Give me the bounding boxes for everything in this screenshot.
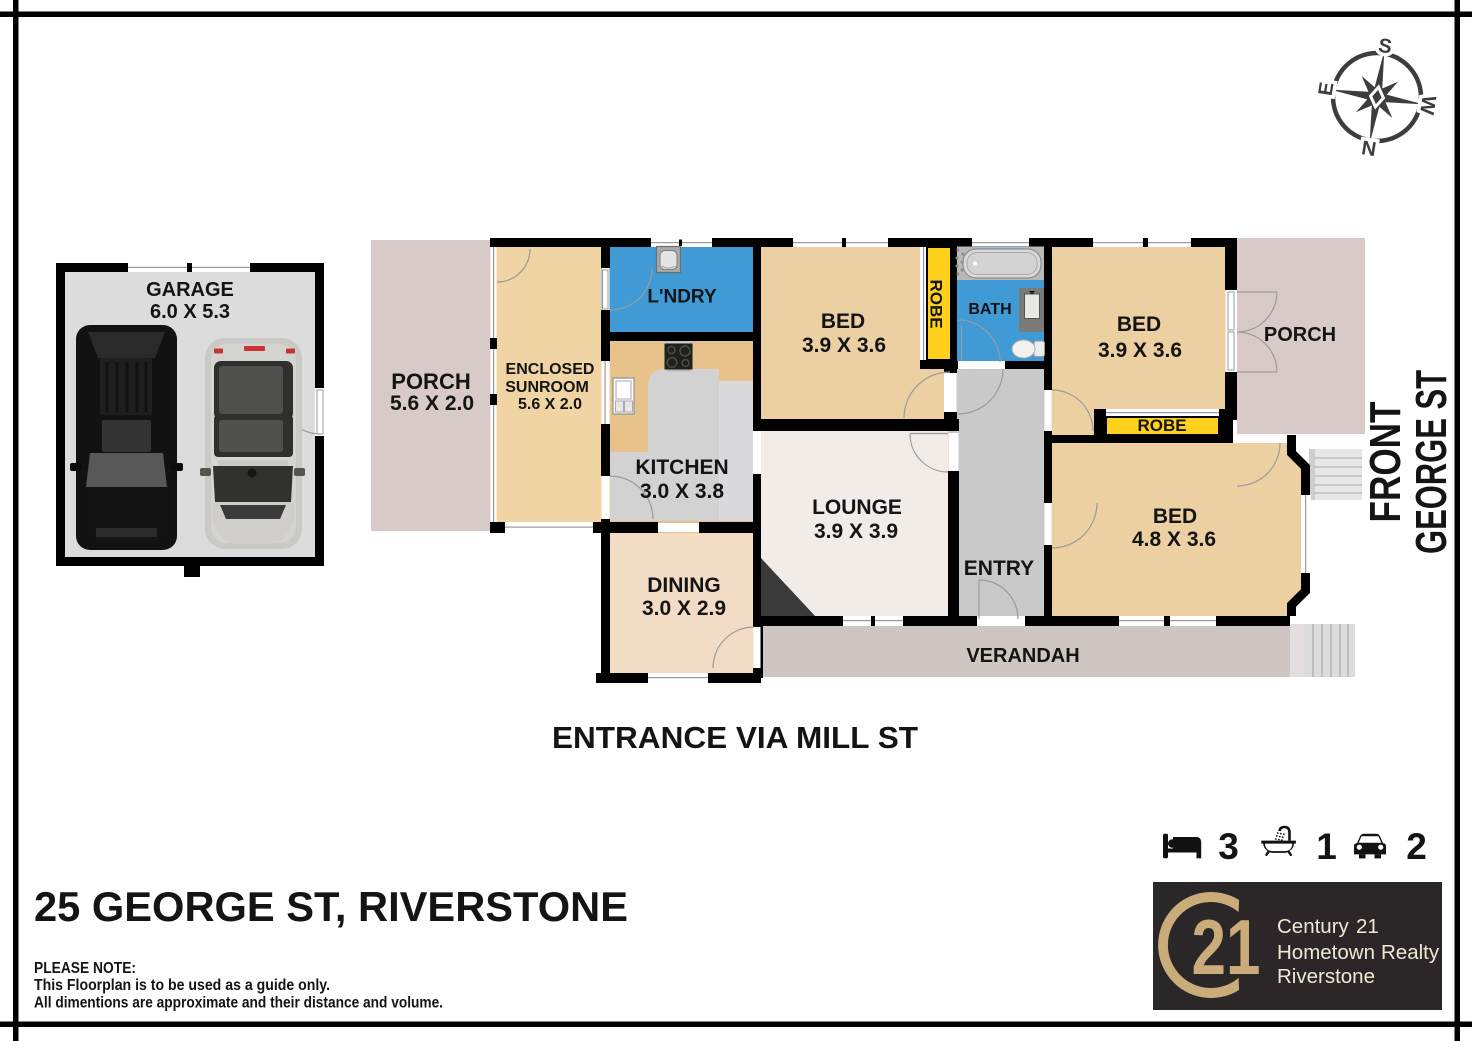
svg-text:LOUNGE: LOUNGE: [812, 496, 902, 519]
svg-text:ENTRANCE VIA MILL ST: ENTRANCE VIA MILL ST: [552, 720, 918, 755]
svg-text:KITCHEN: KITCHEN: [635, 456, 728, 479]
svg-text:5.6 X 2.0: 5.6 X 2.0: [390, 392, 474, 415]
svg-text:GARAGE: GARAGE: [146, 279, 234, 301]
svg-text:ENCLOSED: ENCLOSED: [506, 361, 595, 378]
svg-text:4.8 X 3.6: 4.8 X 3.6: [1132, 528, 1216, 551]
svg-text:3.0 X 3.8: 3.0 X 3.8: [640, 480, 724, 503]
svg-text:3.9 X 3.6: 3.9 X 3.6: [1098, 339, 1182, 362]
svg-text:BATH: BATH: [968, 301, 1011, 318]
svg-text:PORCH: PORCH: [391, 369, 470, 394]
svg-text:6.0 X 5.3: 6.0 X 5.3: [150, 301, 230, 323]
svg-text:SUNROOM: SUNROOM: [505, 379, 589, 396]
svg-text:L'NDRY: L'NDRY: [647, 287, 717, 308]
svg-text:25 GEORGE ST, RIVERSTONE: 25 GEORGE ST, RIVERSTONE: [34, 883, 628, 930]
svg-text:2: 2: [1406, 826, 1427, 867]
svg-text:Hometown: Hometown: [1277, 941, 1375, 964]
svg-text:ROBE: ROBE: [1137, 416, 1186, 435]
svg-text:3.9 X 3.9: 3.9 X 3.9: [814, 520, 898, 543]
svg-text:PLEASE NOTE:: PLEASE NOTE:: [34, 960, 136, 977]
svg-text:21: 21: [1356, 915, 1379, 938]
svg-text:Realty: Realty: [1381, 941, 1440, 964]
svg-text:FRONT: FRONT: [1361, 401, 1410, 522]
svg-text:This Floorplan is to be used a: This Floorplan is to be used as a guide …: [34, 977, 330, 994]
svg-text:GEORGE ST: GEORGE ST: [1407, 370, 1456, 554]
svg-text:3.0 X 2.9: 3.0 X 2.9: [642, 597, 726, 620]
svg-text:ENTRY: ENTRY: [964, 557, 1034, 580]
svg-text:VERANDAH: VERANDAH: [966, 645, 1079, 667]
svg-text:BED: BED: [1153, 505, 1197, 528]
svg-text:W: W: [1415, 94, 1440, 116]
svg-text:PORCH: PORCH: [1264, 324, 1336, 346]
svg-text:5.6 X 2.0: 5.6 X 2.0: [518, 396, 582, 413]
svg-text:DINING: DINING: [647, 574, 721, 597]
svg-text:1: 1: [1316, 826, 1337, 867]
svg-text:3.9 X 3.6: 3.9 X 3.6: [802, 334, 886, 357]
svg-text:21: 21: [1192, 903, 1261, 990]
svg-text:3: 3: [1218, 826, 1239, 867]
svg-text:Century: Century: [1277, 915, 1350, 938]
svg-text:ROBE: ROBE: [927, 279, 946, 328]
svg-text:BED: BED: [1117, 313, 1161, 336]
svg-text:All dimentions are approximate: All dimentions are approximate and their…: [34, 995, 443, 1012]
svg-text:BED: BED: [821, 310, 865, 333]
svg-text:Riverstone: Riverstone: [1277, 965, 1375, 988]
